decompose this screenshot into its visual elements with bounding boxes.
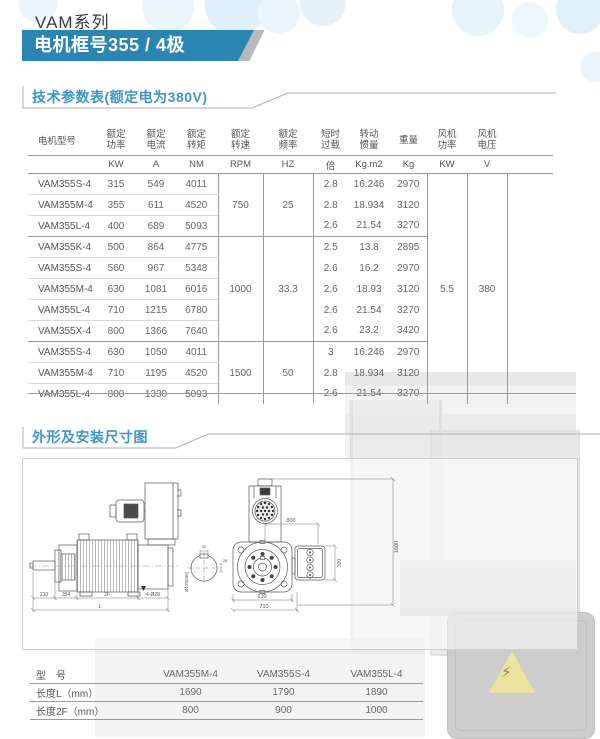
model-cell: VAM355S-4	[28, 342, 95, 363]
power-cell: 400	[95, 216, 137, 237]
unit-weight: Kg	[390, 156, 427, 174]
spec-table-bottom-rule	[28, 393, 576, 394]
unit-fan-voltage: V	[467, 156, 507, 174]
overload-cell: 2.5	[313, 237, 348, 258]
fan-power-cell: 5.5	[427, 174, 467, 405]
weight-cell: 3270	[390, 300, 427, 321]
weight-cell: 3120	[390, 195, 427, 216]
weight-cell: 2970	[390, 174, 427, 195]
overload-cell: 2.8	[313, 363, 348, 384]
overload-cell: 3	[313, 342, 348, 363]
power-cell: 630	[95, 279, 137, 300]
overload-cell: 2.8	[313, 195, 348, 216]
dim-label: 254	[62, 592, 71, 598]
current-cell: 1081	[137, 279, 175, 300]
unit-power: KW	[95, 156, 137, 174]
speed-cell: 1000	[218, 237, 263, 342]
torque-cell: 4011	[175, 342, 218, 363]
dimension-table: 型 号 VAM355M-4 VAM355S-4 VAM355L-4 长度L（mm…	[30, 666, 423, 720]
current-cell: 1215	[137, 300, 175, 321]
col-torque: 额定转矩	[175, 125, 218, 156]
detail-dim-label: 28	[223, 558, 228, 563]
dim-label: 610	[257, 594, 266, 600]
current-cell: 967	[137, 258, 175, 279]
current-cell: 689	[137, 216, 175, 237]
motor-side-view-drawing: 210 254 2F 4-Ø28 L Ø120(m6) 32 28	[28, 470, 228, 622]
weight-cell: 2970	[390, 258, 427, 279]
dim-label: 320	[337, 559, 343, 568]
inertia-cell: 13.8	[348, 237, 390, 258]
unit-inertia: Kg.m2	[348, 156, 390, 174]
dim-label: 800	[286, 518, 295, 524]
motor-front-view-drawing: 800 1600 320 610 710	[230, 462, 410, 622]
weight-cell: 2970	[390, 342, 427, 363]
page-banner: 电机框号355 / 4极	[22, 30, 254, 61]
weight-cell: 3270	[390, 216, 427, 237]
model-cell: VAM355M-4	[28, 363, 95, 384]
dim-model: VAM355M-4	[144, 666, 237, 684]
model-cell: VAM355L-4	[28, 300, 95, 321]
power-cell: 710	[95, 363, 137, 384]
filler-cell	[507, 174, 553, 405]
overload-cell: 2.6	[313, 300, 348, 321]
overload-cell: 2.6	[313, 216, 348, 237]
inertia-cell: 18.93	[348, 279, 390, 300]
power-cell: 500	[95, 237, 137, 258]
col-fan-voltage: 风机电压	[467, 125, 507, 156]
dim-row: 长度L（mm） 1690 1790 1890	[30, 684, 423, 702]
inertia-cell: 16.246	[348, 174, 390, 195]
model-cell: VAM355S-4	[28, 174, 95, 195]
section-title-specs: 技术参数表(额定电为380V)	[32, 87, 208, 107]
dim-label: 1600	[394, 541, 400, 553]
unit-current: A	[137, 156, 175, 174]
dim-model: VAM355L-4	[330, 666, 423, 684]
dim-header-label: 型 号	[30, 666, 144, 684]
unit-speed: RPM	[218, 156, 263, 174]
unit-torque: NM	[175, 156, 218, 174]
col-power: 额定功率	[95, 125, 137, 156]
speed-cell: 750	[218, 174, 263, 237]
freq-cell: 25	[263, 174, 313, 237]
overload-cell: 2.6	[313, 258, 348, 279]
power-cell: 560	[95, 258, 137, 279]
power-cell: 630	[95, 342, 137, 363]
col-filler	[507, 125, 553, 156]
inertia-cell: 18.934	[348, 195, 390, 216]
overload-cell: 2.8	[313, 174, 348, 195]
dim-value: 800	[144, 702, 237, 720]
col-fan-power: 风机功率	[427, 125, 467, 156]
current-cell: 864	[137, 237, 175, 258]
spec-header-row: 电机型号 额定功率 额定电流 额定转矩 额定转速 额定频率 短时过载 转动惯量 …	[28, 125, 553, 156]
torque-cell: 6016	[175, 279, 218, 300]
inertia-cell: 21.54	[348, 216, 390, 237]
col-current: 额定电流	[137, 125, 175, 156]
model-cell: VAM355M-4	[28, 195, 95, 216]
overload-cell: 2.6	[313, 279, 348, 300]
dim-label: 210	[40, 592, 49, 598]
power-cell: 710	[95, 300, 137, 321]
dim-row-label: 长度2F（mm）	[30, 702, 144, 720]
col-overload: 短时过载	[313, 125, 348, 156]
weight-cell: 3120	[390, 279, 427, 300]
speed-cell: 1500	[218, 342, 263, 405]
col-model: 电机型号	[28, 125, 95, 156]
spec-table: 电机型号 额定功率 额定电流 额定转矩 额定转速 额定频率 短时过载 转动惯量 …	[28, 125, 553, 404]
dim-label: 710	[259, 604, 268, 610]
model-cell: VAM355S-4	[28, 258, 95, 279]
torque-cell: 5093	[175, 216, 218, 237]
unit-freq: HZ	[263, 156, 313, 174]
dim-value: 1000	[330, 702, 423, 720]
dim-header-row: 型 号 VAM355M-4 VAM355S-4 VAM355L-4	[30, 666, 423, 684]
unit-overload: 倍	[313, 156, 348, 174]
inertia-cell: 18.934	[348, 363, 390, 384]
freq-cell: 33.3	[263, 237, 313, 342]
torque-cell: 4011	[175, 174, 218, 195]
unit-filler	[507, 156, 553, 174]
inertia-cell: 16.246	[348, 342, 390, 363]
spec-units-row: KW A NM RPM HZ 倍 Kg.m2 Kg KW V	[28, 156, 553, 174]
section-title-dimensions: 外形及安装尺寸图	[32, 427, 148, 447]
dim-label: L	[99, 604, 102, 610]
power-cell: 315	[95, 174, 137, 195]
current-cell: 611	[137, 195, 175, 216]
dim-row: 长度2F（mm） 800 900 1000	[30, 702, 423, 720]
lightning-icon: ⚡	[501, 663, 512, 681]
weight-cell: 2895	[390, 237, 427, 258]
current-cell: 1195	[137, 363, 175, 384]
dim-value: 1890	[330, 684, 423, 702]
overload-cell: 2.6	[313, 321, 348, 342]
col-weight: 重量	[390, 125, 427, 156]
series-title: VAM系列	[35, 8, 110, 33]
fan-voltage-cell: 380	[467, 174, 507, 405]
dim-label: 4-Ø28	[146, 592, 160, 598]
power-cell: 355	[95, 195, 137, 216]
weight-cell: 3120	[390, 363, 427, 384]
col-freq: 额定频率	[263, 125, 313, 156]
dim-model: VAM355S-4	[237, 666, 330, 684]
inertia-cell: 16.2	[348, 258, 390, 279]
unit-fan-power: KW	[427, 156, 467, 174]
power-cell: 800	[95, 321, 137, 342]
dim-label: 2F	[104, 592, 110, 598]
inertia-cell: 23.2	[348, 321, 390, 342]
torque-cell: 7640	[175, 321, 218, 342]
model-cell: VAM355X-4	[28, 321, 95, 342]
current-cell: 1366	[137, 321, 175, 342]
detail-dim-label: 32	[202, 544, 207, 549]
torque-cell: 4520	[175, 195, 218, 216]
col-inertia: 转动惯量	[348, 125, 390, 156]
torque-cell: 5348	[175, 258, 218, 279]
weight-cell: 3420	[390, 321, 427, 342]
dim-value: 900	[237, 702, 330, 720]
torque-cell: 4775	[175, 237, 218, 258]
dim-row-label: 长度L（mm）	[30, 684, 144, 702]
dim-value: 1790	[237, 684, 330, 702]
unit-model	[28, 156, 95, 174]
torque-cell: 4520	[175, 363, 218, 384]
model-cell: VAM355M-4	[28, 279, 95, 300]
spec-row: VAM355S-4 315 549 4011 750 25 2.8 16.246…	[28, 174, 553, 195]
current-cell: 1050	[137, 342, 175, 363]
torque-cell: 6780	[175, 300, 218, 321]
inertia-cell: 21.54	[348, 300, 390, 321]
model-cell: VAM355K-4	[28, 237, 95, 258]
shaft-diameter-label: Ø120(m6)	[184, 571, 189, 592]
col-speed: 额定转速	[218, 125, 263, 156]
dim-value: 1690	[144, 684, 237, 702]
freq-cell: 50	[263, 342, 313, 405]
model-cell: VAM355L-4	[28, 216, 95, 237]
current-cell: 549	[137, 174, 175, 195]
